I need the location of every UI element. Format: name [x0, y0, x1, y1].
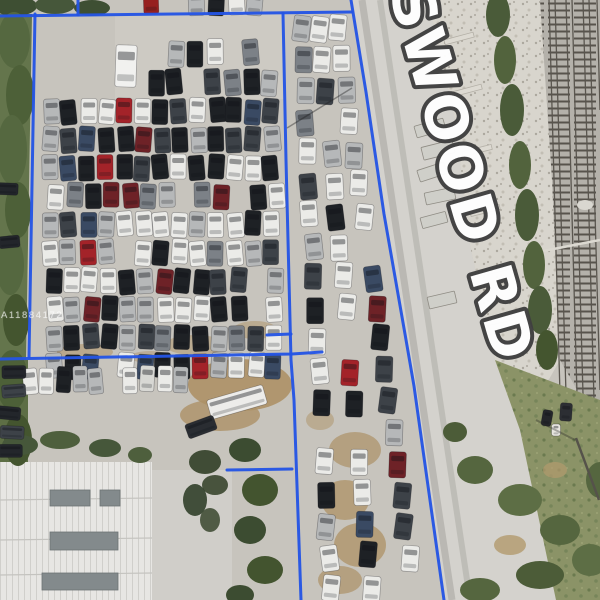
aerial-scene: SWOOD RD	[0, 0, 600, 600]
trackside-object	[577, 200, 593, 210]
aerial-photo: SWOOD RD A11884172	[0, 0, 600, 600]
roof-sections	[42, 490, 120, 590]
